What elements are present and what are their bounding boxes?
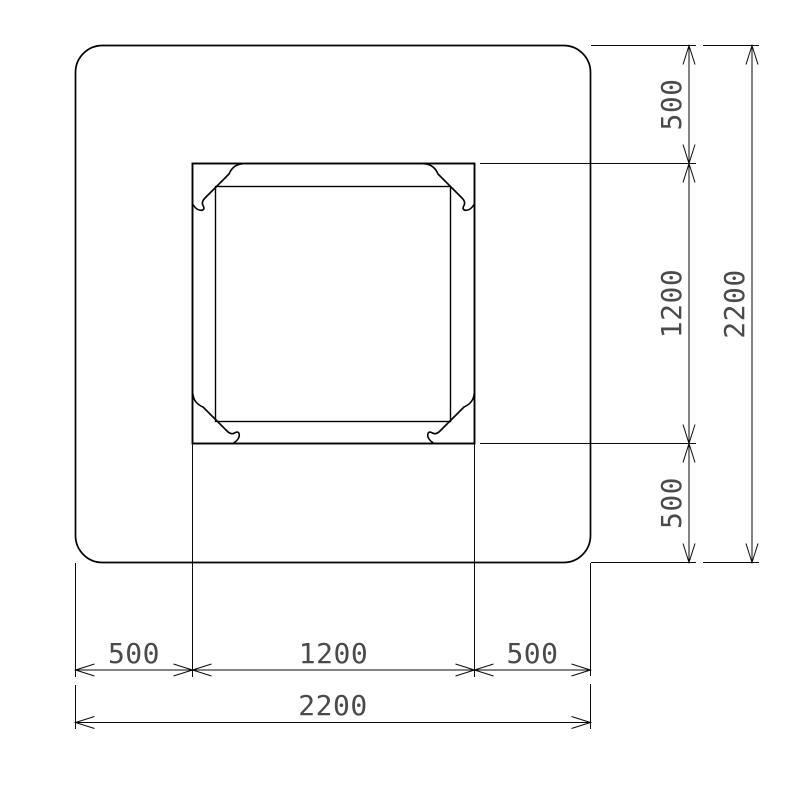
dim-label-bottom-left: 500 — [108, 637, 160, 670]
dim-label-right-middle: 1200 — [655, 269, 688, 338]
drawing-page: 500 1200 500 2200 500 1200 500 2200 — [0, 0, 800, 786]
extension-lines-bottom — [76, 445, 591, 730]
column-inner-square — [216, 187, 451, 422]
dim-label-right-overall: 2200 — [718, 269, 751, 338]
extension-lines — [76, 46, 760, 730]
dim-label-bottom-middle: 1200 — [299, 637, 368, 670]
dim-label-bottom-overall: 2200 — [298, 689, 367, 722]
dim-label-right-top: 500 — [655, 78, 688, 130]
column-outer-square — [193, 164, 475, 444]
dimension-labels: 500 1200 500 2200 500 1200 500 2200 — [108, 78, 751, 722]
plate-outlines — [76, 46, 591, 563]
dim-label-bottom-right: 500 — [506, 637, 558, 670]
dim-label-right-bottom: 500 — [655, 477, 688, 529]
cad-drawing-canvas: 500 1200 500 2200 500 1200 500 2200 — [0, 0, 800, 786]
dimension-lines — [76, 46, 753, 723]
dimension-arrows — [76, 46, 759, 729]
outer-plate-outline — [76, 46, 591, 563]
